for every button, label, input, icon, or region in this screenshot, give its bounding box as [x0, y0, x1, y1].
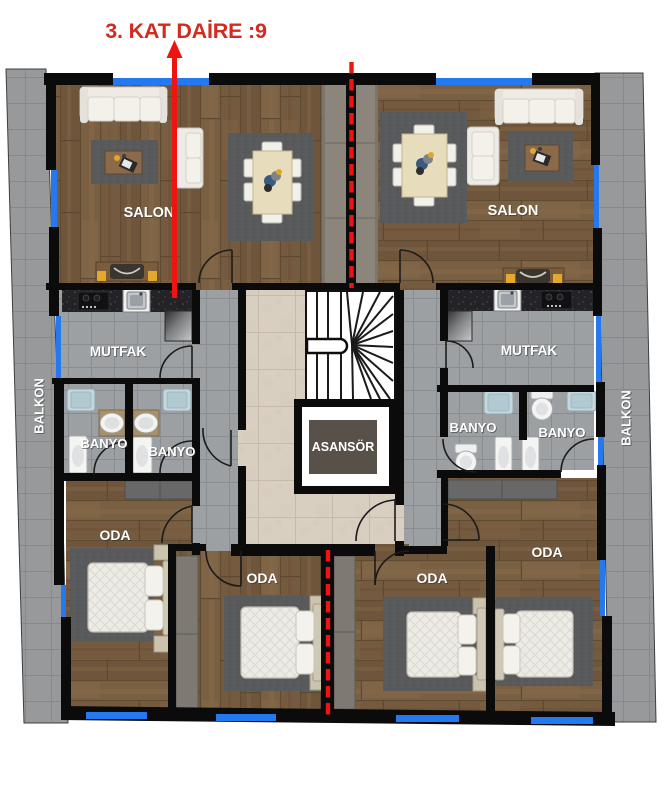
- svg-text:BANYO: BANYO: [81, 436, 128, 451]
- svg-text:MUTFAK: MUTFAK: [90, 344, 146, 359]
- svg-text:SALON: SALON: [124, 205, 175, 221]
- svg-text:3. KAT DAİRE :9: 3. KAT DAİRE :9: [105, 19, 267, 43]
- svg-text:BALKON: BALKON: [32, 378, 47, 434]
- svg-text:ASANSÖR: ASANSÖR: [312, 439, 375, 454]
- svg-text:BANYO: BANYO: [539, 425, 586, 440]
- svg-text:ODA: ODA: [531, 544, 562, 560]
- svg-text:ODA: ODA: [416, 570, 447, 586]
- svg-text:ODA: ODA: [99, 527, 130, 543]
- svg-text:BANYO: BANYO: [450, 420, 497, 435]
- svg-text:MUTFAK: MUTFAK: [501, 343, 557, 358]
- svg-text:ODA: ODA: [246, 570, 277, 586]
- svg-text:BALKON: BALKON: [619, 390, 634, 446]
- svg-text:SALON: SALON: [488, 203, 539, 219]
- svg-text:BANYO: BANYO: [149, 444, 196, 459]
